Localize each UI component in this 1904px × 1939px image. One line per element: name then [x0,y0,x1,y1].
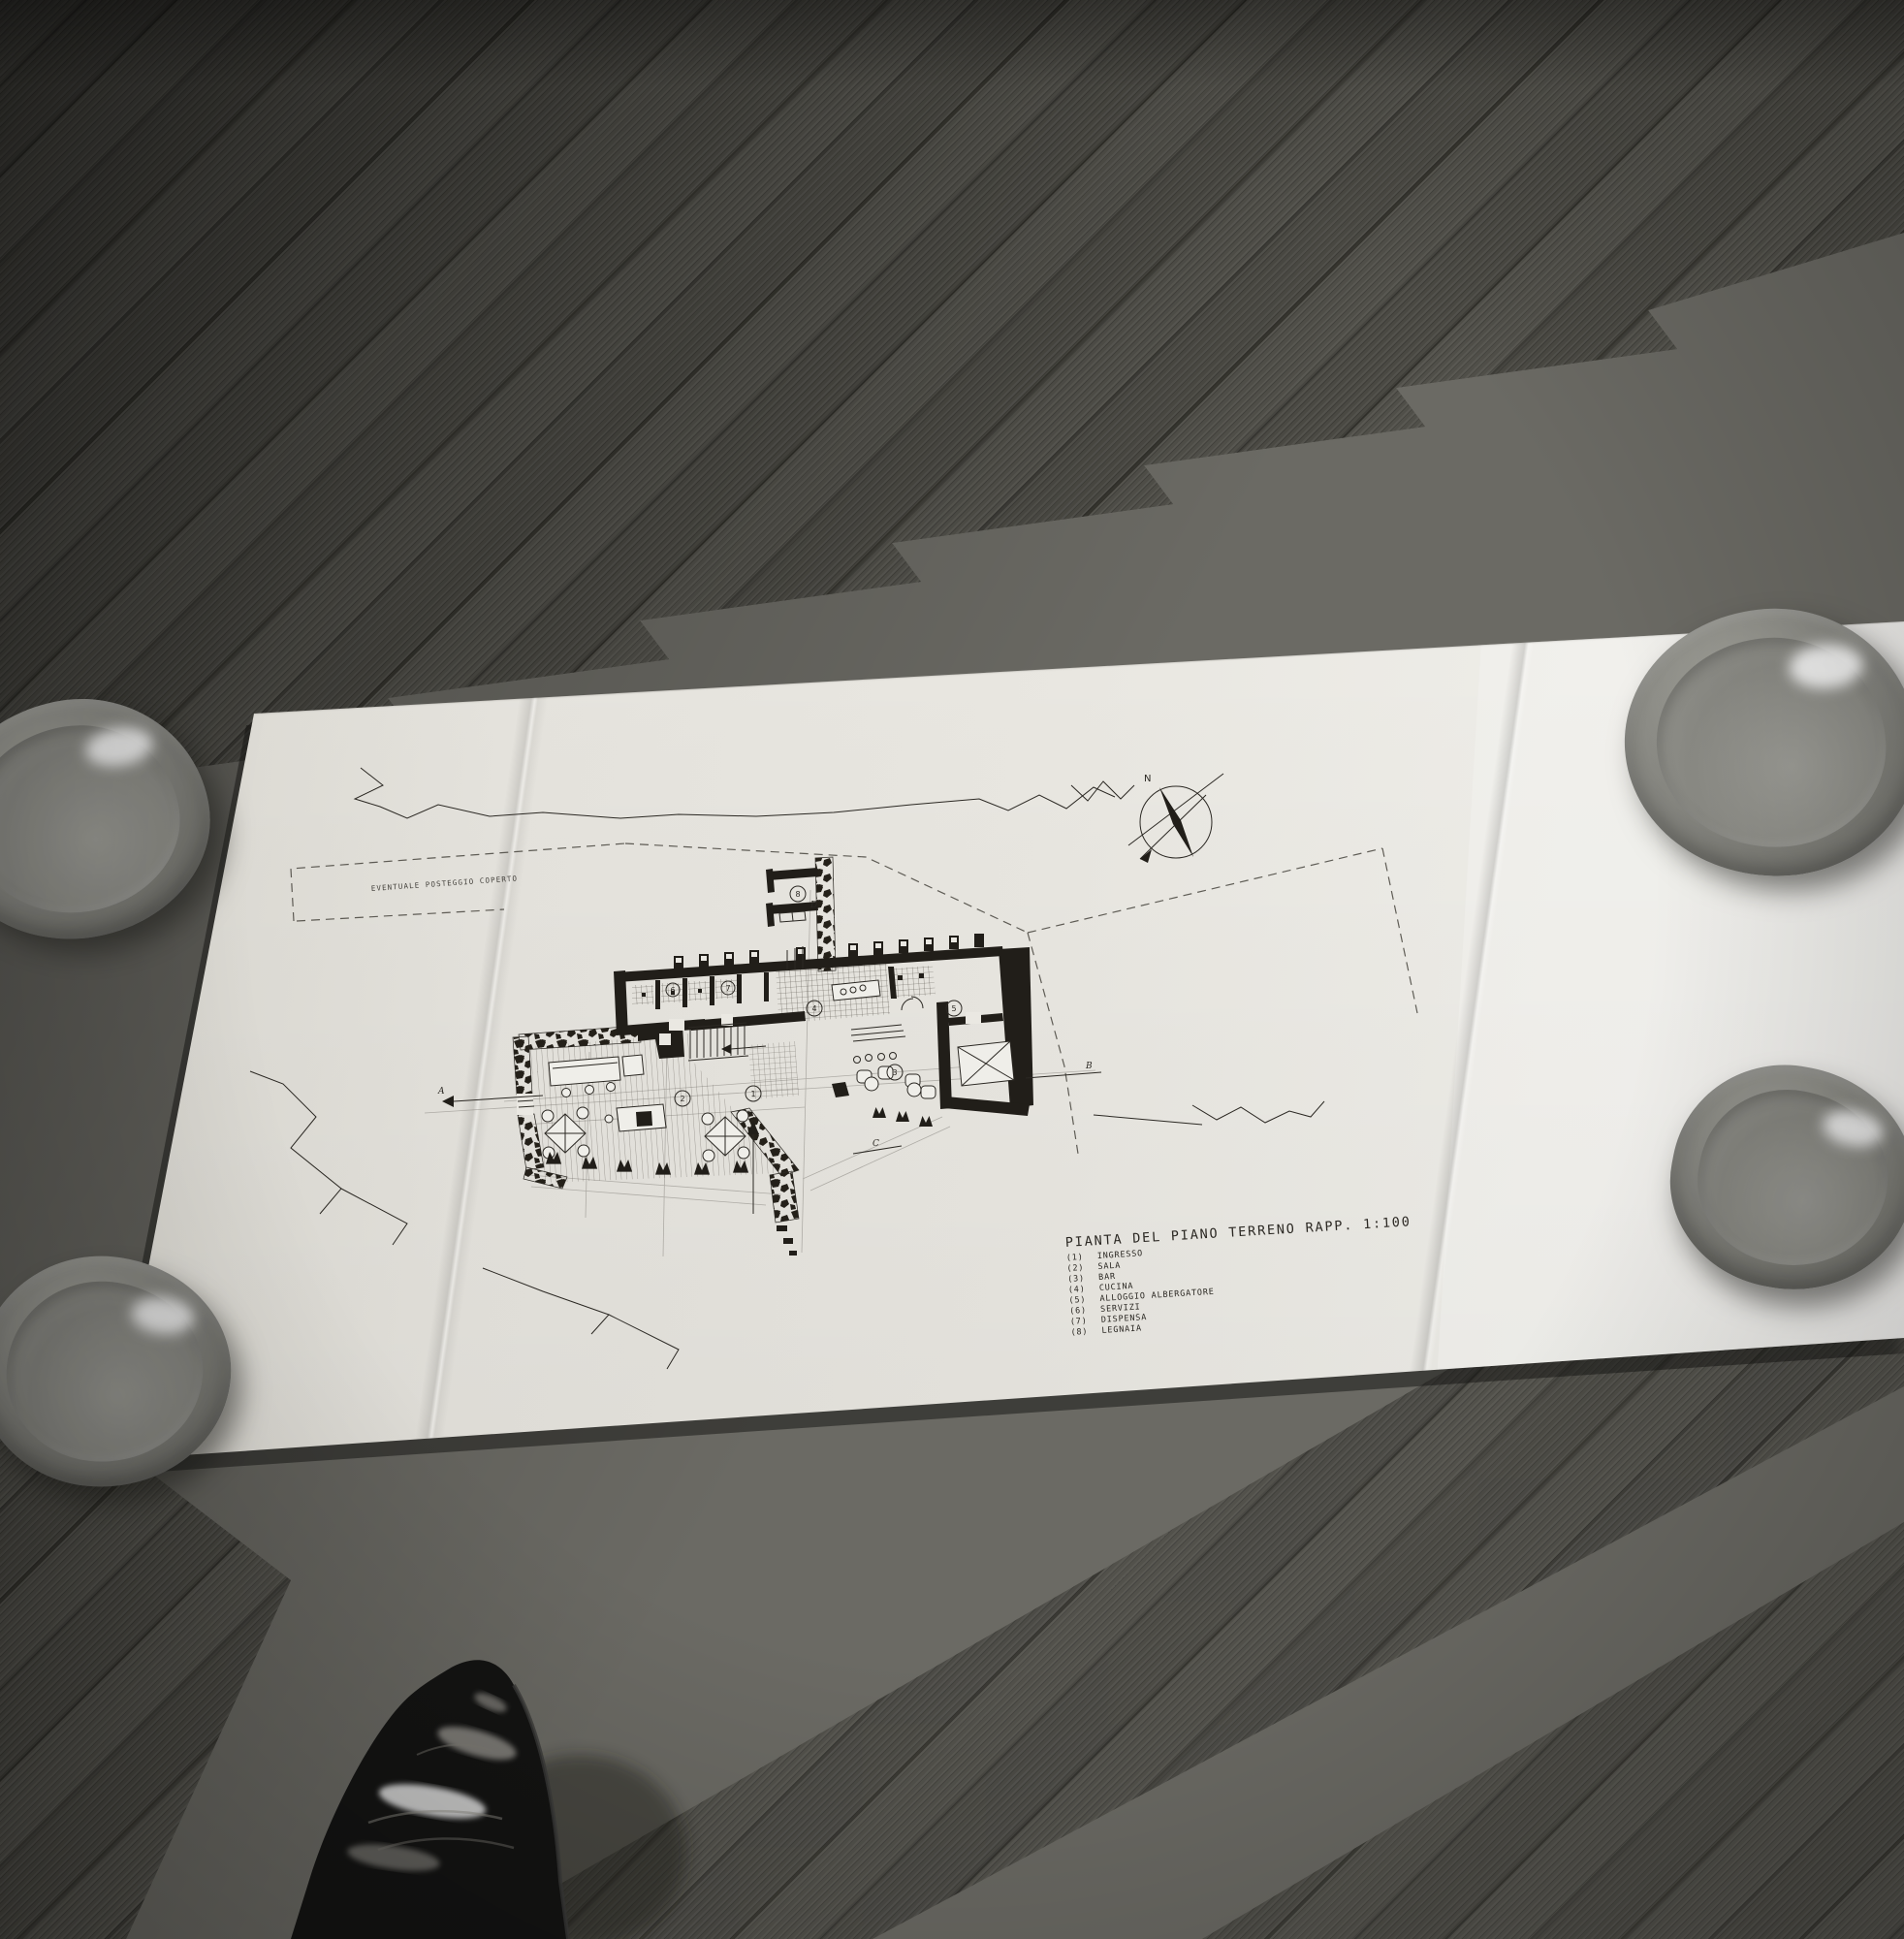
shoe [223,1629,708,1939]
room-marker-8: 8 [795,890,800,899]
vegetation-right [1094,1040,1324,1194]
legend-label: CUCINA [1099,1282,1134,1293]
bar-furniture [851,1025,936,1098]
legend-num: (7) [1070,1317,1088,1327]
terrain-line-top [355,768,1134,829]
section-marker-b: B [1085,1062,1093,1071]
legend-label: BAR [1098,1272,1116,1283]
compass-rose: N [1128,774,1223,863]
title-block: PIANTA DEL PIANO TERRENO RAPP. 1:100 (1)… [1064,1214,1416,1338]
compass-north-label: N [1144,774,1151,784]
section-markers: A B C D [437,901,1101,1154]
plan-title: PIANTA DEL PIANO TERRENO RAPP. 1:100 [1064,1214,1412,1251]
legend-num: (1) [1066,1253,1084,1263]
photograph: A B C D 1 2 3 4 5 6 7 [0,0,1904,1939]
legend-num: (8) [1070,1327,1088,1338]
legend-num: (3) [1067,1274,1085,1285]
site-note: EVENTUALE POSTEGGIO COPERTO [371,874,519,893]
svg-text:EVENTUALE POSTEGGIO COPERTO: EVENTUALE POSTEGGIO COPERTO [371,874,519,893]
room-marker-4: 4 [811,1004,816,1013]
legend-num: (2) [1066,1263,1084,1274]
room-marker-5: 5 [951,1004,956,1013]
legend-label: LEGNAIA [1101,1323,1142,1336]
shoe-svg [223,1629,708,1939]
plan-legend: (1) INGRESSO (2) SALA (3) BAR (4) CUCINA… [1066,1245,1217,1338]
legend-num: (5) [1068,1295,1086,1306]
grass-tufts-top [417,785,1073,830]
legend-label: SALA [1097,1261,1121,1272]
room-marker-2: 2 [680,1095,684,1103]
room-marker-3: 3 [892,1068,897,1077]
room-marker-6: 6 [670,986,675,995]
legend-num: (4) [1068,1285,1086,1295]
legend-label: INGRESSO [1097,1249,1144,1261]
stone-steps [777,1225,797,1256]
room-marker-7: 7 [725,984,730,993]
room-marker-1: 1 [750,1090,755,1098]
section-marker-a: A [437,1087,445,1097]
section-marker-c: C [873,1139,879,1149]
section-marker-d: D [809,901,817,910]
legend-num: (6) [1069,1306,1087,1317]
